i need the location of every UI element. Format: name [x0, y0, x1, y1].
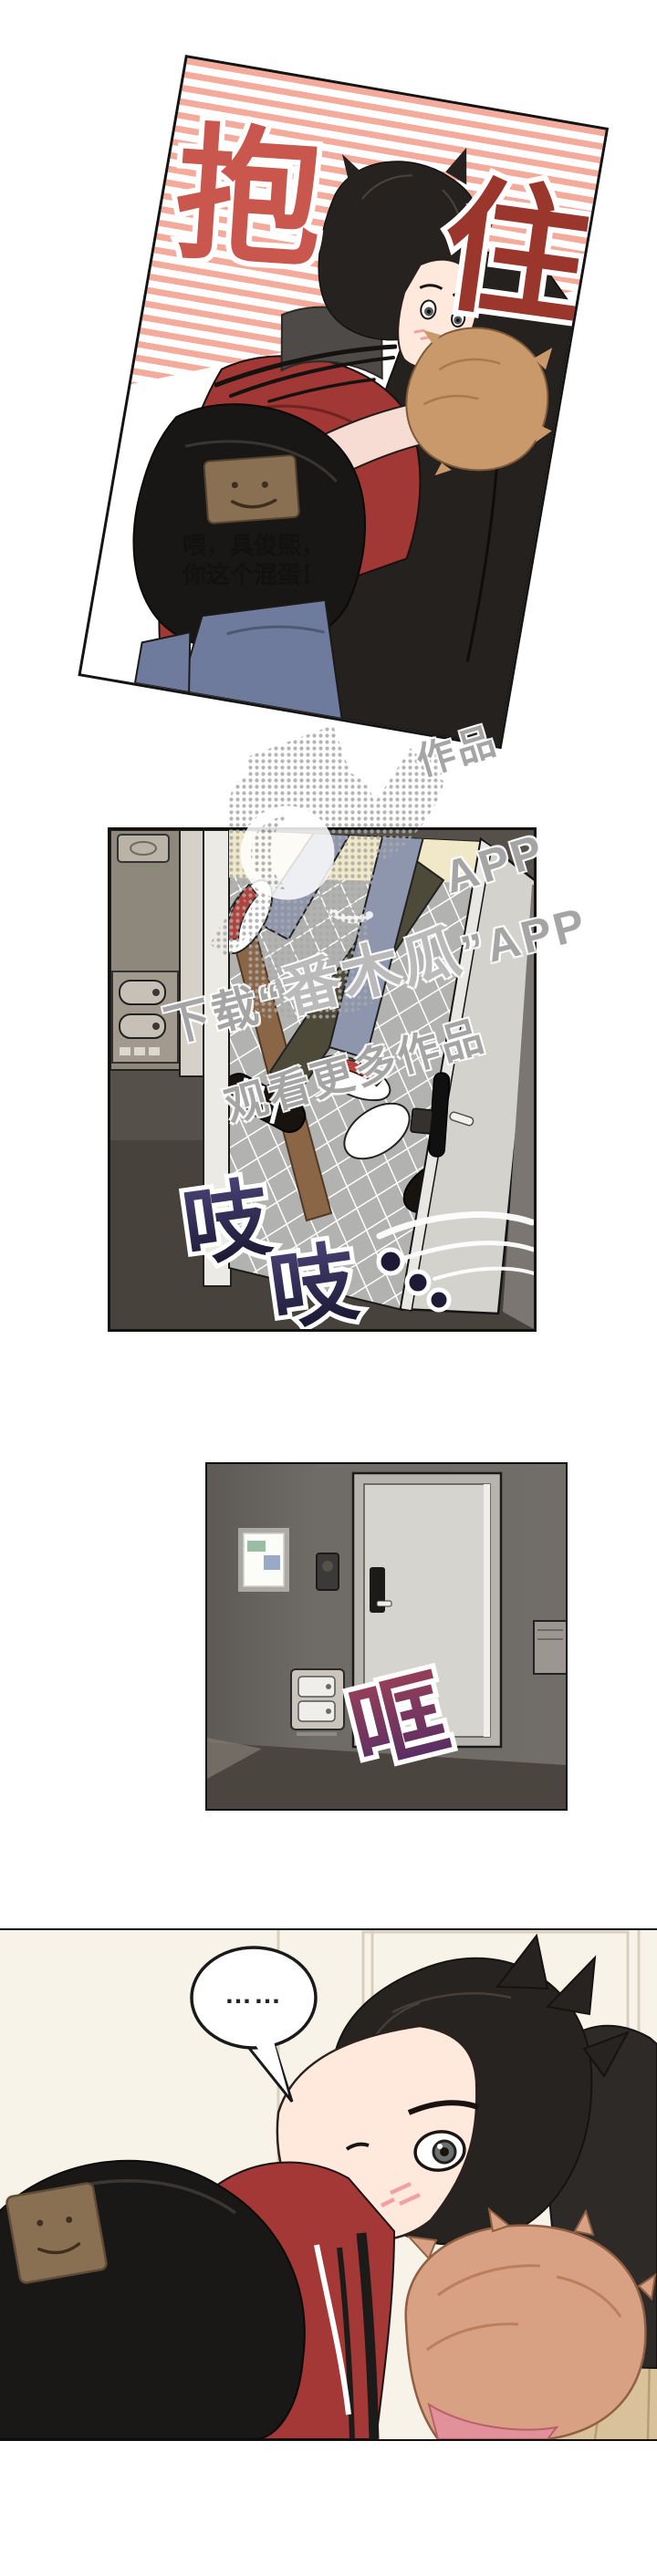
backpack-smiley-patch	[203, 455, 299, 524]
speech-line-2: 你这个混蛋！	[182, 560, 328, 589]
hallway-scene-art: 哐	[207, 1464, 566, 1809]
speech-line-1: 喂，具俊熙，	[182, 531, 328, 560]
bubble-ellipsis: ……	[224, 1979, 283, 2010]
panel-4-closeup: ……	[0, 1928, 657, 2441]
wall-box	[534, 1621, 566, 1674]
closeup-scene-art: ……	[0, 1930, 657, 2439]
sfx-creak-char-2: 吱	[264, 1233, 364, 1329]
wall-poster	[238, 1528, 289, 1592]
panel-3-hallway-door: 哐	[205, 1462, 568, 1811]
comic-page: 抱 住 喂，具俊熙， 你这个混蛋！	[0, 0, 657, 2576]
title-char-tight: 住	[433, 162, 600, 344]
backpack-smiley-patch	[5, 2182, 107, 2283]
title-char-hold: 抱	[171, 111, 328, 284]
motion-lines	[214, 339, 397, 403]
door-latch	[411, 1108, 433, 1134]
sfx-creak-char-1: 吱	[177, 1169, 277, 1277]
light-switch-panel	[291, 1669, 344, 1734]
speech-text: 喂，具俊熙， 你这个混蛋！	[182, 531, 328, 589]
